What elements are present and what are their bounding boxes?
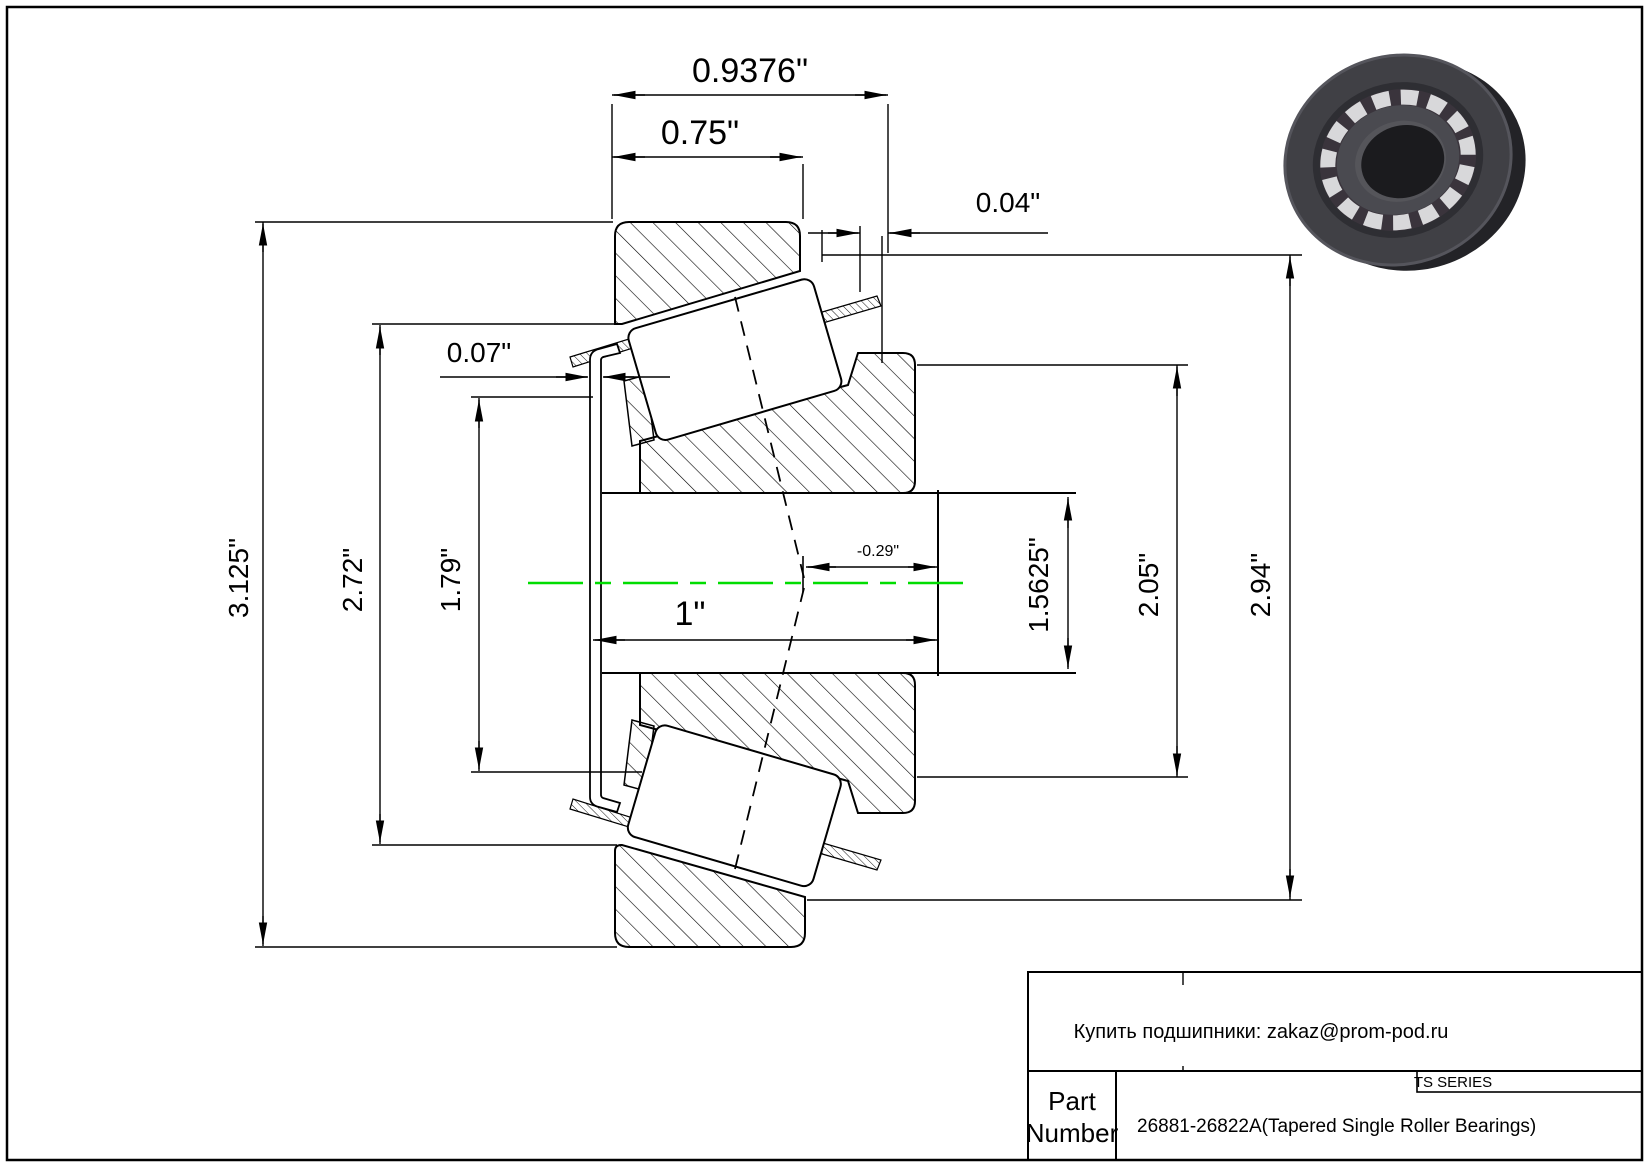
dim-label-cup-width: 0.75" bbox=[661, 114, 739, 152]
dim-label-flange-od: 3.125" bbox=[223, 538, 254, 618]
dim-label-effective-center: -0.29" bbox=[857, 543, 899, 560]
dim-label-outer-diameter: 2.72" bbox=[337, 548, 368, 612]
part-number-text: 26881-26822A(Tapered Single Roller Beari… bbox=[1137, 1116, 1536, 1137]
series-label: TS SERIES bbox=[1414, 1074, 1492, 1091]
bearing-cross-section bbox=[570, 222, 1076, 947]
front-flange bbox=[590, 344, 620, 812]
dim-label-cone-back-od: 2.05" bbox=[1133, 553, 1164, 617]
title-block: Купить подшипники: zakaz@prom-pod.ru TS … bbox=[1026, 972, 1642, 1160]
dim-label-bore: 1.5625" bbox=[1023, 537, 1054, 633]
dim-label-cone-width: 1" bbox=[675, 595, 706, 633]
dim-label-flange-thickness: 0.07" bbox=[447, 337, 511, 368]
part-label-line2: Number bbox=[1026, 1118, 1119, 1148]
bearing-drawing-svg: 0.9376" 0.75" 0.04" 0.07" 3.125" 2.72" 1… bbox=[0, 0, 1649, 1167]
dim-label-standout: 0.04" bbox=[976, 187, 1040, 218]
dim-label-cup-inner: 1.79" bbox=[435, 548, 466, 612]
drawing-sheet: 0.9376" 0.75" 0.04" 0.07" 3.125" 2.72" 1… bbox=[0, 0, 1649, 1167]
dim-label-housing: 2.94" bbox=[1245, 553, 1276, 617]
dim-label-total-width: 0.9376" bbox=[692, 52, 808, 90]
contact-text: Купить подшипники: zakaz@prom-pod.ru bbox=[1074, 1021, 1449, 1043]
bearing-3d-image bbox=[1257, 22, 1553, 303]
part-label-line1: Part bbox=[1048, 1086, 1096, 1116]
